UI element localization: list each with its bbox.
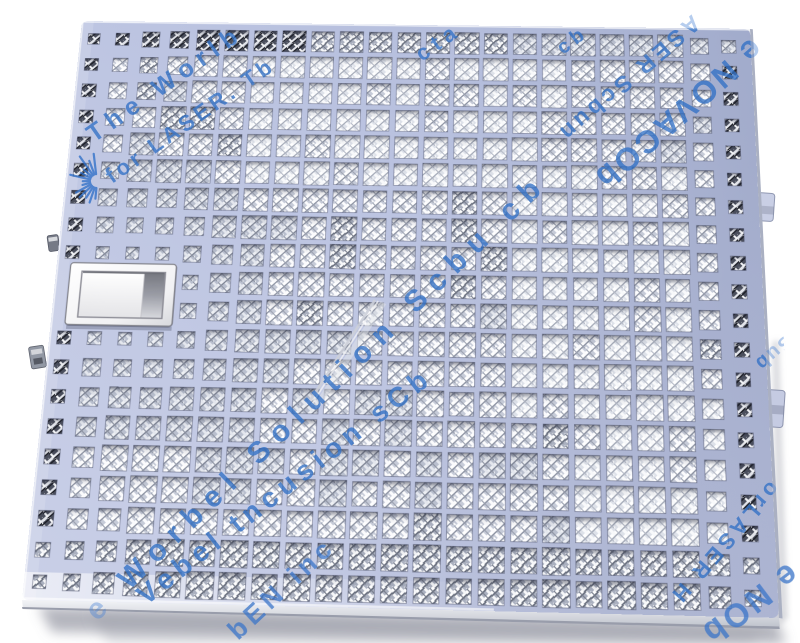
svg-text:cta: cta — [411, 17, 466, 66]
svg-text:bEN inc: bEN inc — [222, 531, 342, 643]
svg-text:e NOVACOb: e NOVACOb — [587, 32, 770, 198]
svg-text:cb: cb — [553, 21, 593, 59]
